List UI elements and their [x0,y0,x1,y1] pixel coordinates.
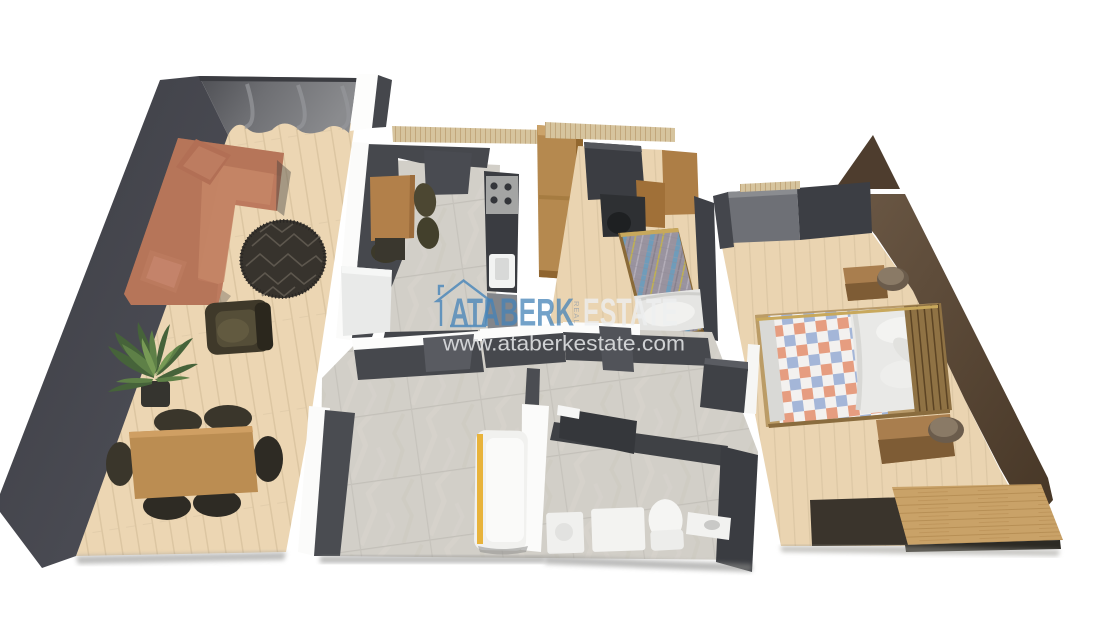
svg-text:www.ataberkestate.com: www.ataberkestate.com [442,333,685,356]
svg-text:ATABERK: ATABERK [450,292,574,335]
svg-text:ESTATE: ESTATE [583,292,678,335]
svg-text:REAL: REAL [572,301,581,325]
